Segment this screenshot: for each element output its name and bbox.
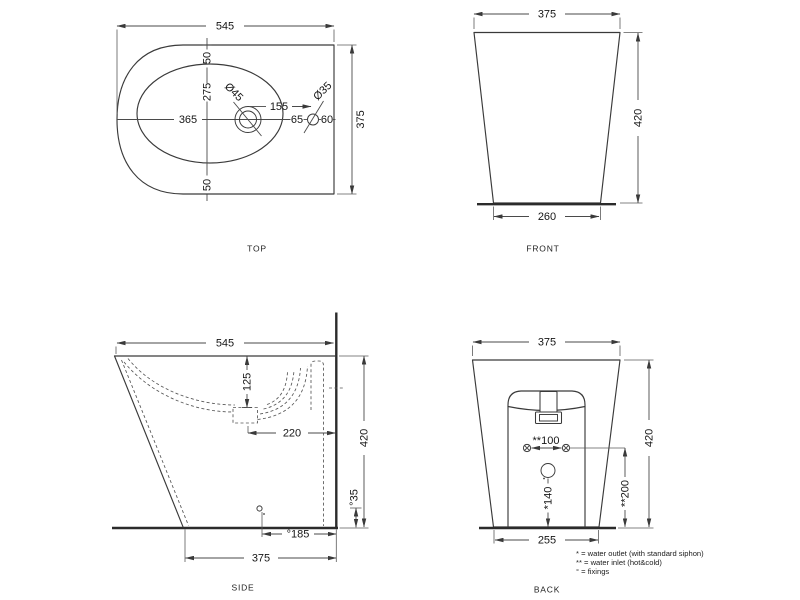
dim-front-420: 420 <box>620 33 645 204</box>
dim-label-side-185: °185 <box>287 529 310 541</box>
front-outline <box>474 33 620 204</box>
dim-label-60: 60 <box>321 114 333 126</box>
dim-label-side-375: 375 <box>252 553 270 565</box>
dim-side-375: 375 <box>185 530 336 565</box>
back-inlet-left <box>523 444 530 451</box>
dim-label-side-35: °35 <box>349 489 361 506</box>
dim-label-side-545: 545 <box>216 338 234 350</box>
side-hidden-profile <box>122 359 344 527</box>
legend-fixings: ° = fixings <box>576 567 609 576</box>
dim-back-140: *140 <box>543 479 555 527</box>
dim-label-65: 65 <box>291 114 303 126</box>
top-view: 545 375 50 275 50 365 65 60 Ø45 Ø35 155 … <box>117 21 367 254</box>
top-tap-hole <box>234 102 262 136</box>
drawing-sheet: 545 375 50 275 50 365 65 60 Ø45 Ø35 155 … <box>0 0 800 600</box>
side-view: 545 125 220 420 <box>112 313 371 593</box>
dim-label-545: 545 <box>216 21 234 33</box>
dim-label-dia45: Ø45 <box>222 81 245 104</box>
dim-side-125: 125 <box>242 357 254 408</box>
dim-back-255: 255 <box>494 530 599 547</box>
dim-label-side-220: 220 <box>283 428 301 440</box>
dim-label-side-420: 420 <box>359 429 371 447</box>
dim-top-155: 155 <box>250 101 311 113</box>
dim-side-545: 545 <box>116 338 334 355</box>
dim-side-220: 220 <box>248 426 336 440</box>
bidet-technical-drawing: 545 375 50 275 50 365 65 60 Ø45 Ø35 155 … <box>0 0 800 600</box>
back-inlet-right <box>562 444 569 451</box>
dim-label-50-top: 50 <box>202 52 214 64</box>
dim-front-260: 260 <box>494 207 601 224</box>
side-front-slant <box>115 356 184 527</box>
dim-top-545: 545 <box>117 21 334 115</box>
dim-side-185: °185 <box>262 512 336 541</box>
dim-label-dia35: Ø35 <box>311 80 334 103</box>
dim-top-375: 375 <box>337 45 367 194</box>
dim-front-375: 375 <box>474 9 620 30</box>
dim-label-155: 155 <box>270 101 288 113</box>
view-title-back: BACK <box>534 585 560 595</box>
dim-label-front-420: 420 <box>633 109 645 127</box>
dim-label-front-260: 260 <box>538 211 556 223</box>
dim-back-100: **100 <box>532 435 626 448</box>
front-view: 375 420 260 FRONT <box>474 9 645 254</box>
dim-label-back-100: **100 <box>533 435 560 447</box>
dim-label-side-125: 125 <box>242 373 254 391</box>
dim-back-375: 375 <box>473 337 621 357</box>
dim-back-200: **200 <box>620 448 632 527</box>
view-title-front: FRONT <box>526 244 559 254</box>
legend-inlet: ** = water inlet (hot&cold) <box>576 558 662 567</box>
dim-label-front-375: 375 <box>538 9 556 21</box>
dim-label-back-140: *140 <box>543 487 555 510</box>
dim-label-back-255: 255 <box>538 535 556 547</box>
side-fixing-hole <box>257 506 265 515</box>
view-title-top: TOP <box>247 244 267 254</box>
legend: * = water outlet (with standard siphon) … <box>576 549 704 576</box>
dim-label-365: 365 <box>179 114 197 126</box>
back-outlet <box>541 464 555 480</box>
legend-outlet: * = water outlet (with standard siphon) <box>576 549 704 558</box>
dim-label-back-200: **200 <box>620 480 632 507</box>
dim-label-back-375: 375 <box>538 337 556 349</box>
dim-label-275: 275 <box>202 83 214 101</box>
dim-label-50-bottom: 50 <box>202 179 214 191</box>
top-basin-rim <box>137 64 283 163</box>
back-view: **100 *140 **200 420 <box>473 337 705 595</box>
dim-label-back-420: 420 <box>644 429 656 447</box>
view-title-side: SIDE <box>231 583 254 593</box>
dim-side-35: °35 <box>349 489 362 527</box>
back-spud <box>536 392 562 424</box>
dim-label-375: 375 <box>355 110 367 128</box>
